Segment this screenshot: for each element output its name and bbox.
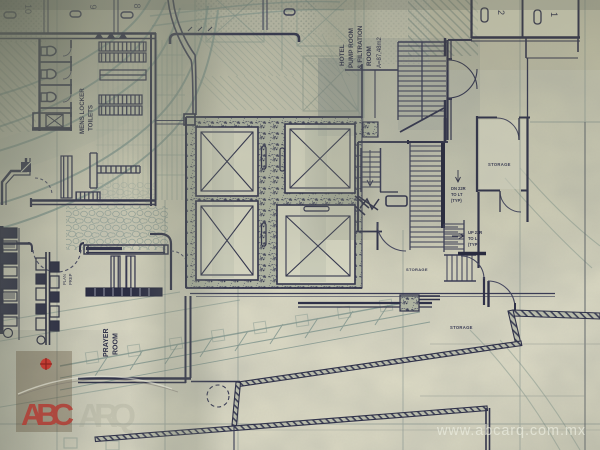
svg-text:10: 10 xyxy=(23,4,33,14)
svg-text:& FILTRATION: & FILTRATION xyxy=(357,25,364,69)
svg-text:STORAGE: STORAGE xyxy=(450,325,473,330)
svg-text:2: 2 xyxy=(496,10,506,15)
svg-text:ABC: ABC xyxy=(21,397,74,432)
svg-text:DN 22R: DN 22R xyxy=(451,186,466,191)
svg-text:PLAN: PLAN xyxy=(62,274,67,285)
svg-text:TO LT: TO LT xyxy=(451,192,463,197)
svg-text:1: 1 xyxy=(549,12,559,17)
svg-text:PUMP ROOM: PUMP ROOM xyxy=(348,28,355,68)
svg-text:ARQ: ARQ xyxy=(78,397,136,434)
svg-text:STORAGE: STORAGE xyxy=(488,162,511,167)
svg-text:HOTEL: HOTEL xyxy=(339,44,346,66)
svg-text:A=87,48m2: A=87,48m2 xyxy=(377,36,383,68)
svg-text:www.abcarq.com.mx: www.abcarq.com.mx xyxy=(436,423,586,439)
svg-text:ROOM: ROOM xyxy=(366,46,373,66)
svg-text:PREP: PREP xyxy=(68,273,73,285)
svg-text:STORAGE: STORAGE xyxy=(406,267,428,272)
svg-text:TOILETS: TOILETS xyxy=(88,105,95,131)
svg-text:ROOM: ROOM xyxy=(113,333,120,355)
svg-text:(TYP): (TYP) xyxy=(451,198,462,203)
svg-text:8: 8 xyxy=(132,3,142,8)
svg-text:MENS LOCKER: MENS LOCKER xyxy=(79,88,86,134)
svg-text:9: 9 xyxy=(88,4,98,9)
svg-text:UP 22R: UP 22R xyxy=(468,230,482,235)
svg-text:PRAYER: PRAYER xyxy=(103,328,110,357)
